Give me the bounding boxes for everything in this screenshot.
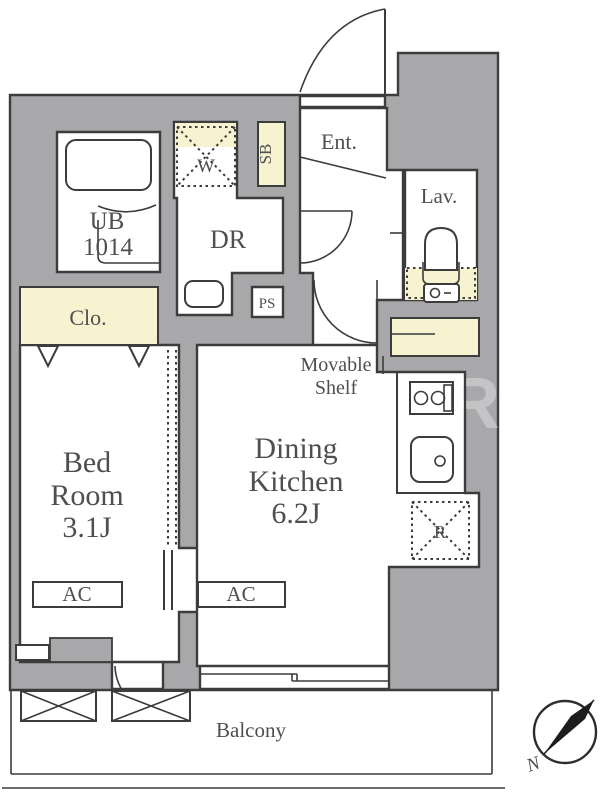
balcony-label: Balcony: [216, 718, 286, 742]
lav-label: Lav.: [421, 184, 458, 208]
bed-room-label-1: Bed: [63, 446, 111, 479]
ac-bedroom-label: AC: [62, 582, 91, 606]
dining-kitchen: Dining Kitchen 6.2J AC: [198, 432, 343, 607]
floor-plan-page: R UB 1014 W SB Ent. DR PS: [0, 0, 600, 800]
dining-kitchen-label-2: Kitchen: [249, 465, 344, 498]
floor-plan: R UB 1014 W SB Ent. DR PS: [0, 0, 600, 800]
dining-kitchen-size-label: 6.2J: [271, 497, 321, 530]
compass: N: [523, 700, 596, 777]
closet-door-mark-1: [38, 346, 58, 366]
dk-door-arc: [314, 280, 377, 343]
closet-label: Clo.: [69, 305, 106, 330]
washer-label: W: [197, 156, 215, 177]
hall-door-arc: [300, 211, 352, 263]
closet-door-mark-2: [129, 346, 149, 366]
bed-room-label-2: Room: [50, 479, 123, 512]
ac-dining-label: AC: [226, 582, 255, 606]
refrigerator-label: R: [434, 522, 446, 542]
watermark: R: [448, 364, 500, 444]
ps-label: PS: [259, 296, 276, 312]
washbasin: [185, 281, 223, 307]
partition: [164, 350, 176, 610]
balcony: Balcony: [2, 690, 505, 788]
hall-dk-door: [314, 280, 377, 343]
pipe-space: PS: [259, 296, 276, 312]
sink: [411, 437, 453, 482]
compass-n-label: N: [523, 752, 544, 777]
movable-shelf-rect: [391, 318, 479, 356]
ub-label: UB: [90, 208, 125, 235]
closet: Clo.: [20, 287, 158, 366]
washer-space: W: [175, 123, 236, 186]
bed-room: Bed Room 3.1J AC: [16, 446, 124, 662]
entrance-step-line: [300, 157, 386, 178]
shoe-box-label: SB: [256, 144, 275, 165]
entrance: Ent.: [300, 9, 386, 263]
bathtub: [66, 140, 151, 190]
entrance-label: Ent.: [321, 129, 357, 154]
toilet-tank: [424, 284, 459, 302]
movable-shelf-label-2: Shelf: [315, 377, 358, 399]
wall-step: [50, 638, 112, 662]
movable-shelf-label-1: Movable: [300, 354, 371, 376]
toilet-bowl: [425, 228, 457, 270]
dining-kitchen-label-1: Dining: [254, 432, 337, 465]
ub-size-label: 1014: [83, 234, 134, 261]
entrance-door-arc: [300, 9, 385, 92]
bed-room-size-label: 3.1J: [62, 511, 112, 544]
wall-niche: [16, 645, 49, 660]
dr-label: DR: [210, 225, 247, 254]
unit-bath-room: UB 1014: [66, 140, 159, 263]
shoe-box: SB: [256, 122, 285, 186]
